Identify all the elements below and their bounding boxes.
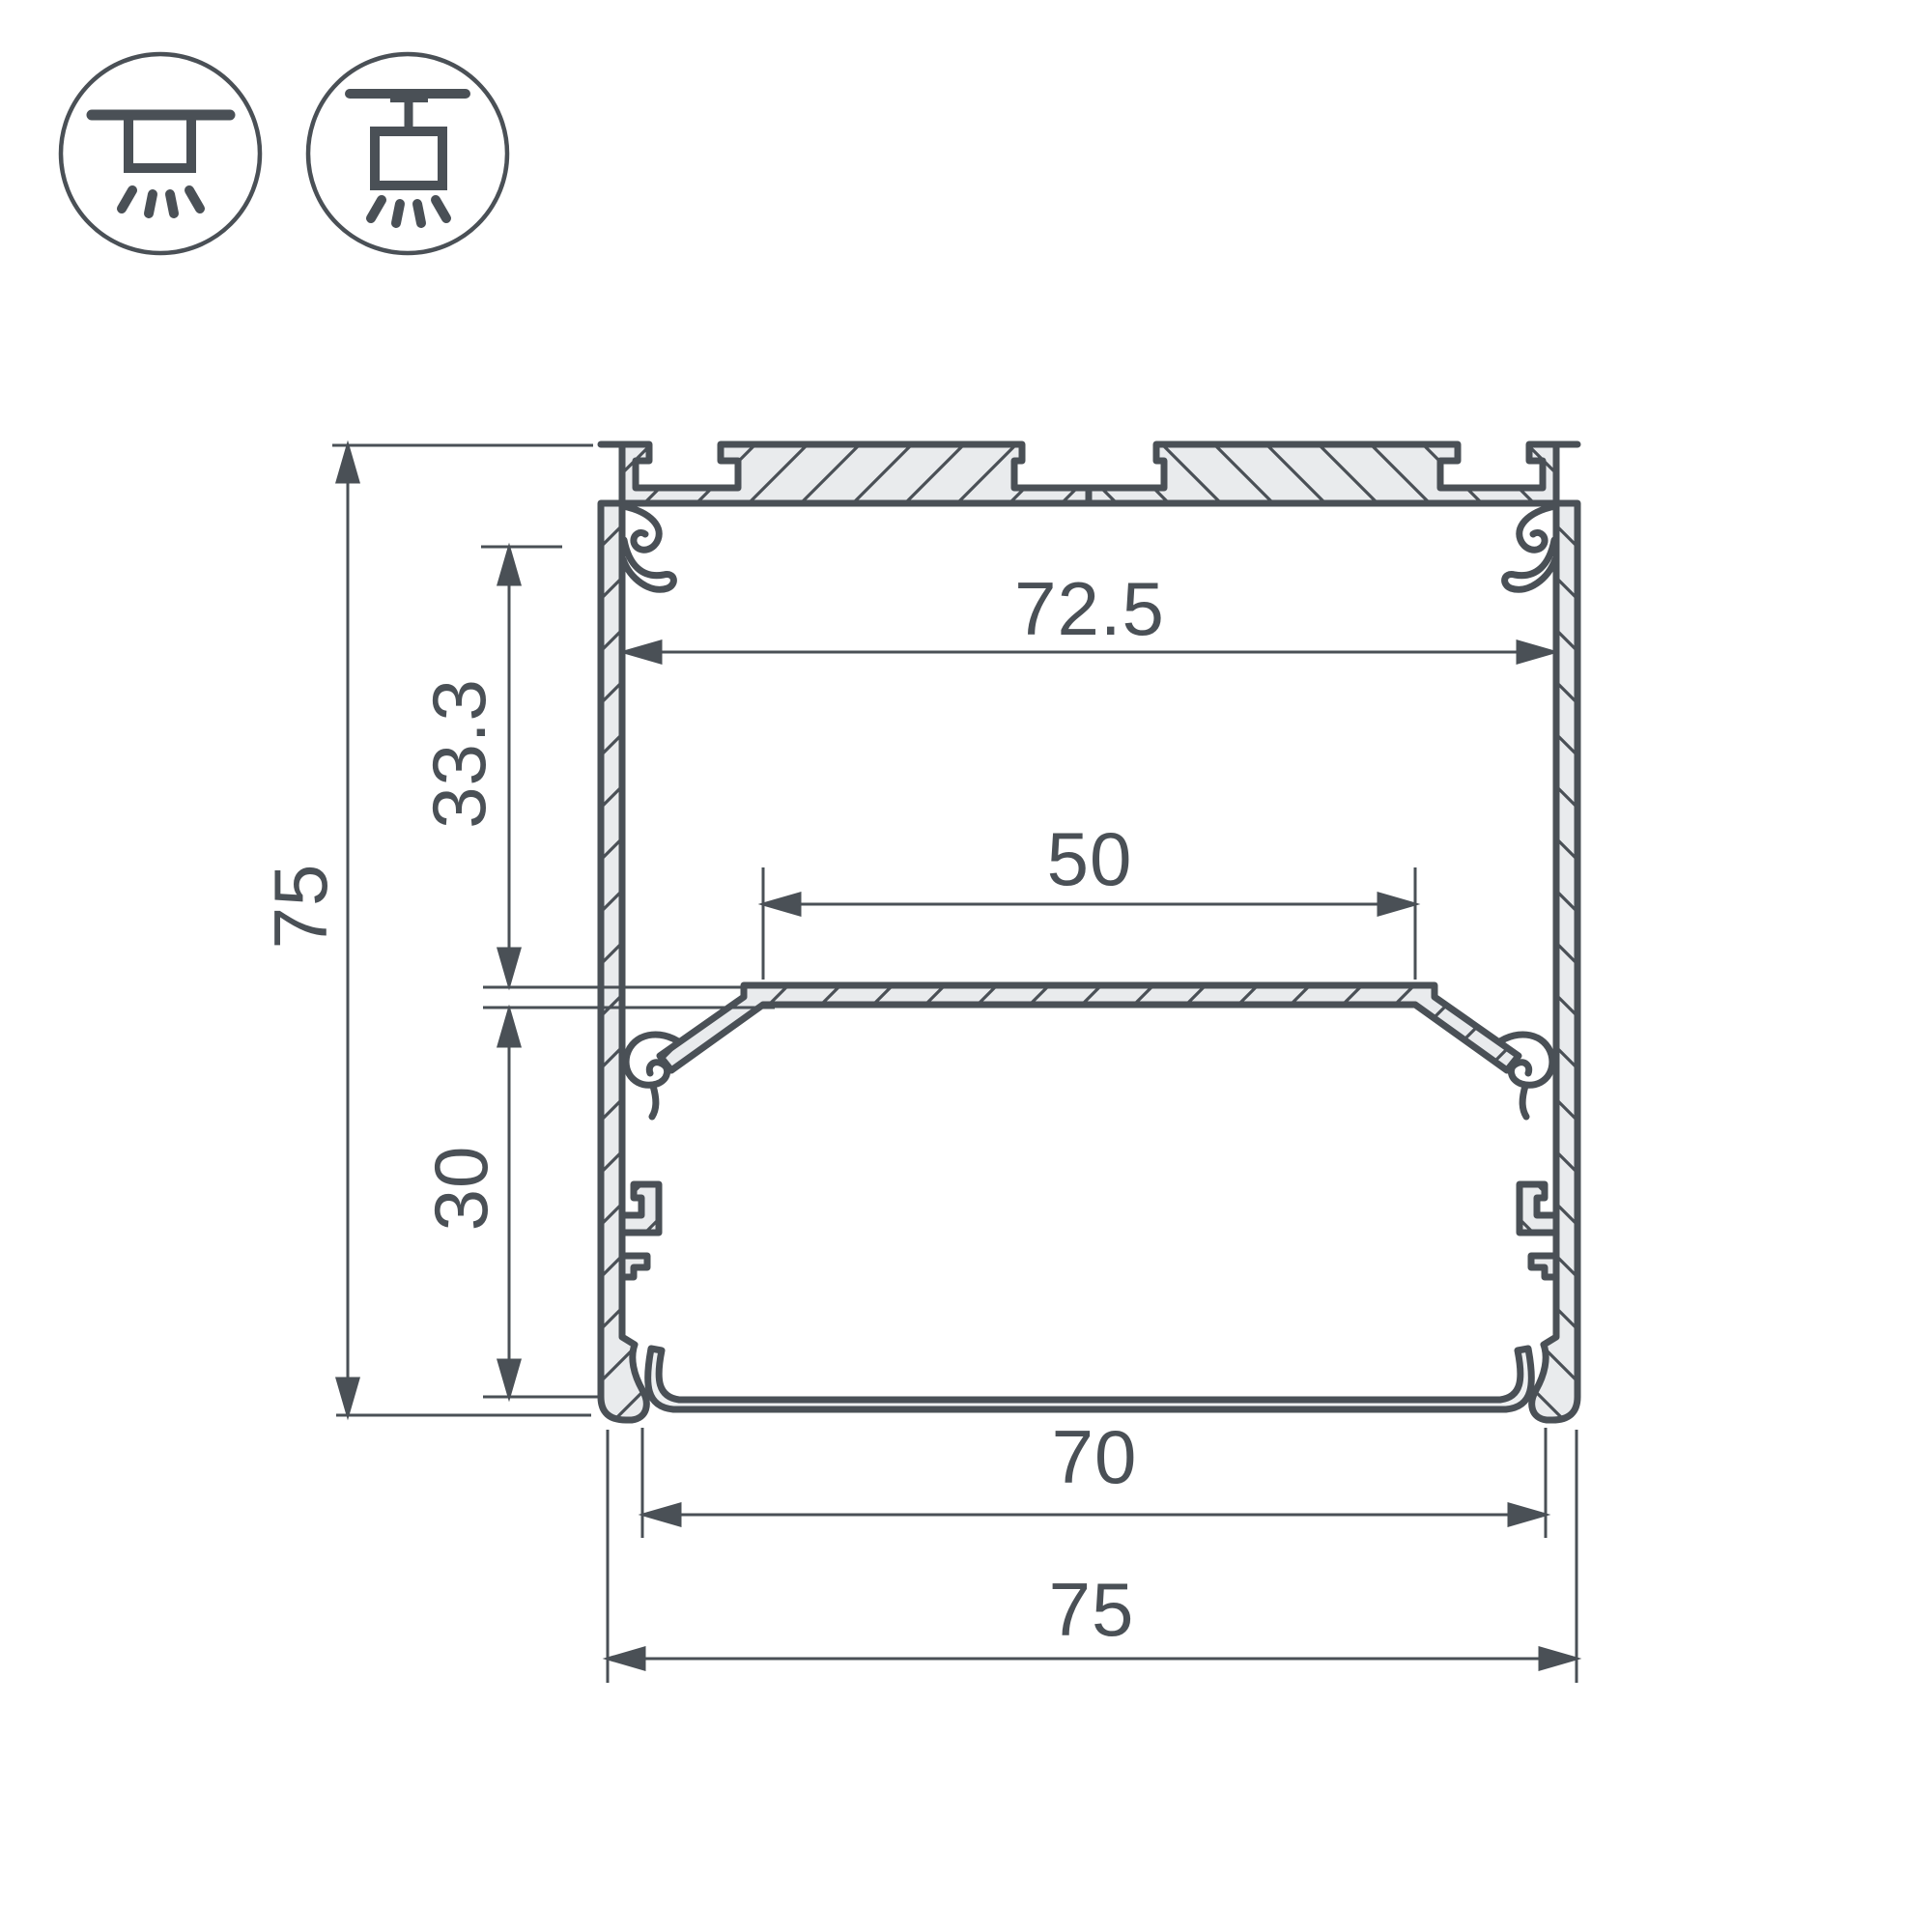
pendant-light-icon — [308, 54, 507, 253]
top-wall-left — [601, 444, 1090, 503]
dim-upper-inner-height: 33.3 — [416, 548, 520, 985]
dim-led-platform-width-label: 50 — [1047, 816, 1133, 901]
mounting-icons — [61, 54, 507, 253]
dim-upper-inner-height-label: 33.3 — [416, 678, 501, 829]
led-shelf — [660, 985, 1519, 1070]
dimension-annotations: 75 33.3 30 72.5 50 — [258, 445, 1577, 1683]
dim-lower-inner-height: 30 — [418, 1009, 520, 1397]
dim-overall-height: 75 — [258, 445, 358, 1415]
mid-hook-left — [622, 1184, 659, 1233]
dim-inner-width-label: 72.5 — [1014, 566, 1165, 651]
side-wall-right — [1532, 503, 1577, 1420]
dim-inner-width: 72.5 — [624, 566, 1554, 663]
top-corner-clip-left — [623, 506, 673, 589]
surface-mount-light-icon — [61, 54, 260, 253]
side-wall-left — [601, 503, 646, 1420]
dim-overall-width: 75 — [608, 1567, 1577, 1669]
dim-bottom-opening-width: 70 — [643, 1414, 1546, 1525]
top-wall-right — [1089, 444, 1577, 503]
dim-overall-width-label: 75 — [1049, 1567, 1135, 1652]
dim-led-platform-width: 50 — [763, 816, 1415, 915]
extension-lines — [332, 445, 1577, 1683]
mid-hook-right — [1520, 1184, 1556, 1233]
top-corner-clip-right — [1505, 506, 1555, 589]
dim-bottom-opening-width-label: 70 — [1052, 1414, 1138, 1499]
dim-overall-height-label: 75 — [258, 864, 343, 950]
mid-nub-left — [622, 1256, 647, 1277]
mid-nub-right — [1531, 1256, 1556, 1277]
drawing-canvas: 75 33.3 30 72.5 50 — [0, 0, 1932, 1932]
diffuser-cover — [648, 1349, 1532, 1409]
dim-lower-inner-height-label: 30 — [418, 1146, 503, 1232]
profile-cross-section-drawing: 75 33.3 30 72.5 50 — [0, 0, 1932, 1932]
